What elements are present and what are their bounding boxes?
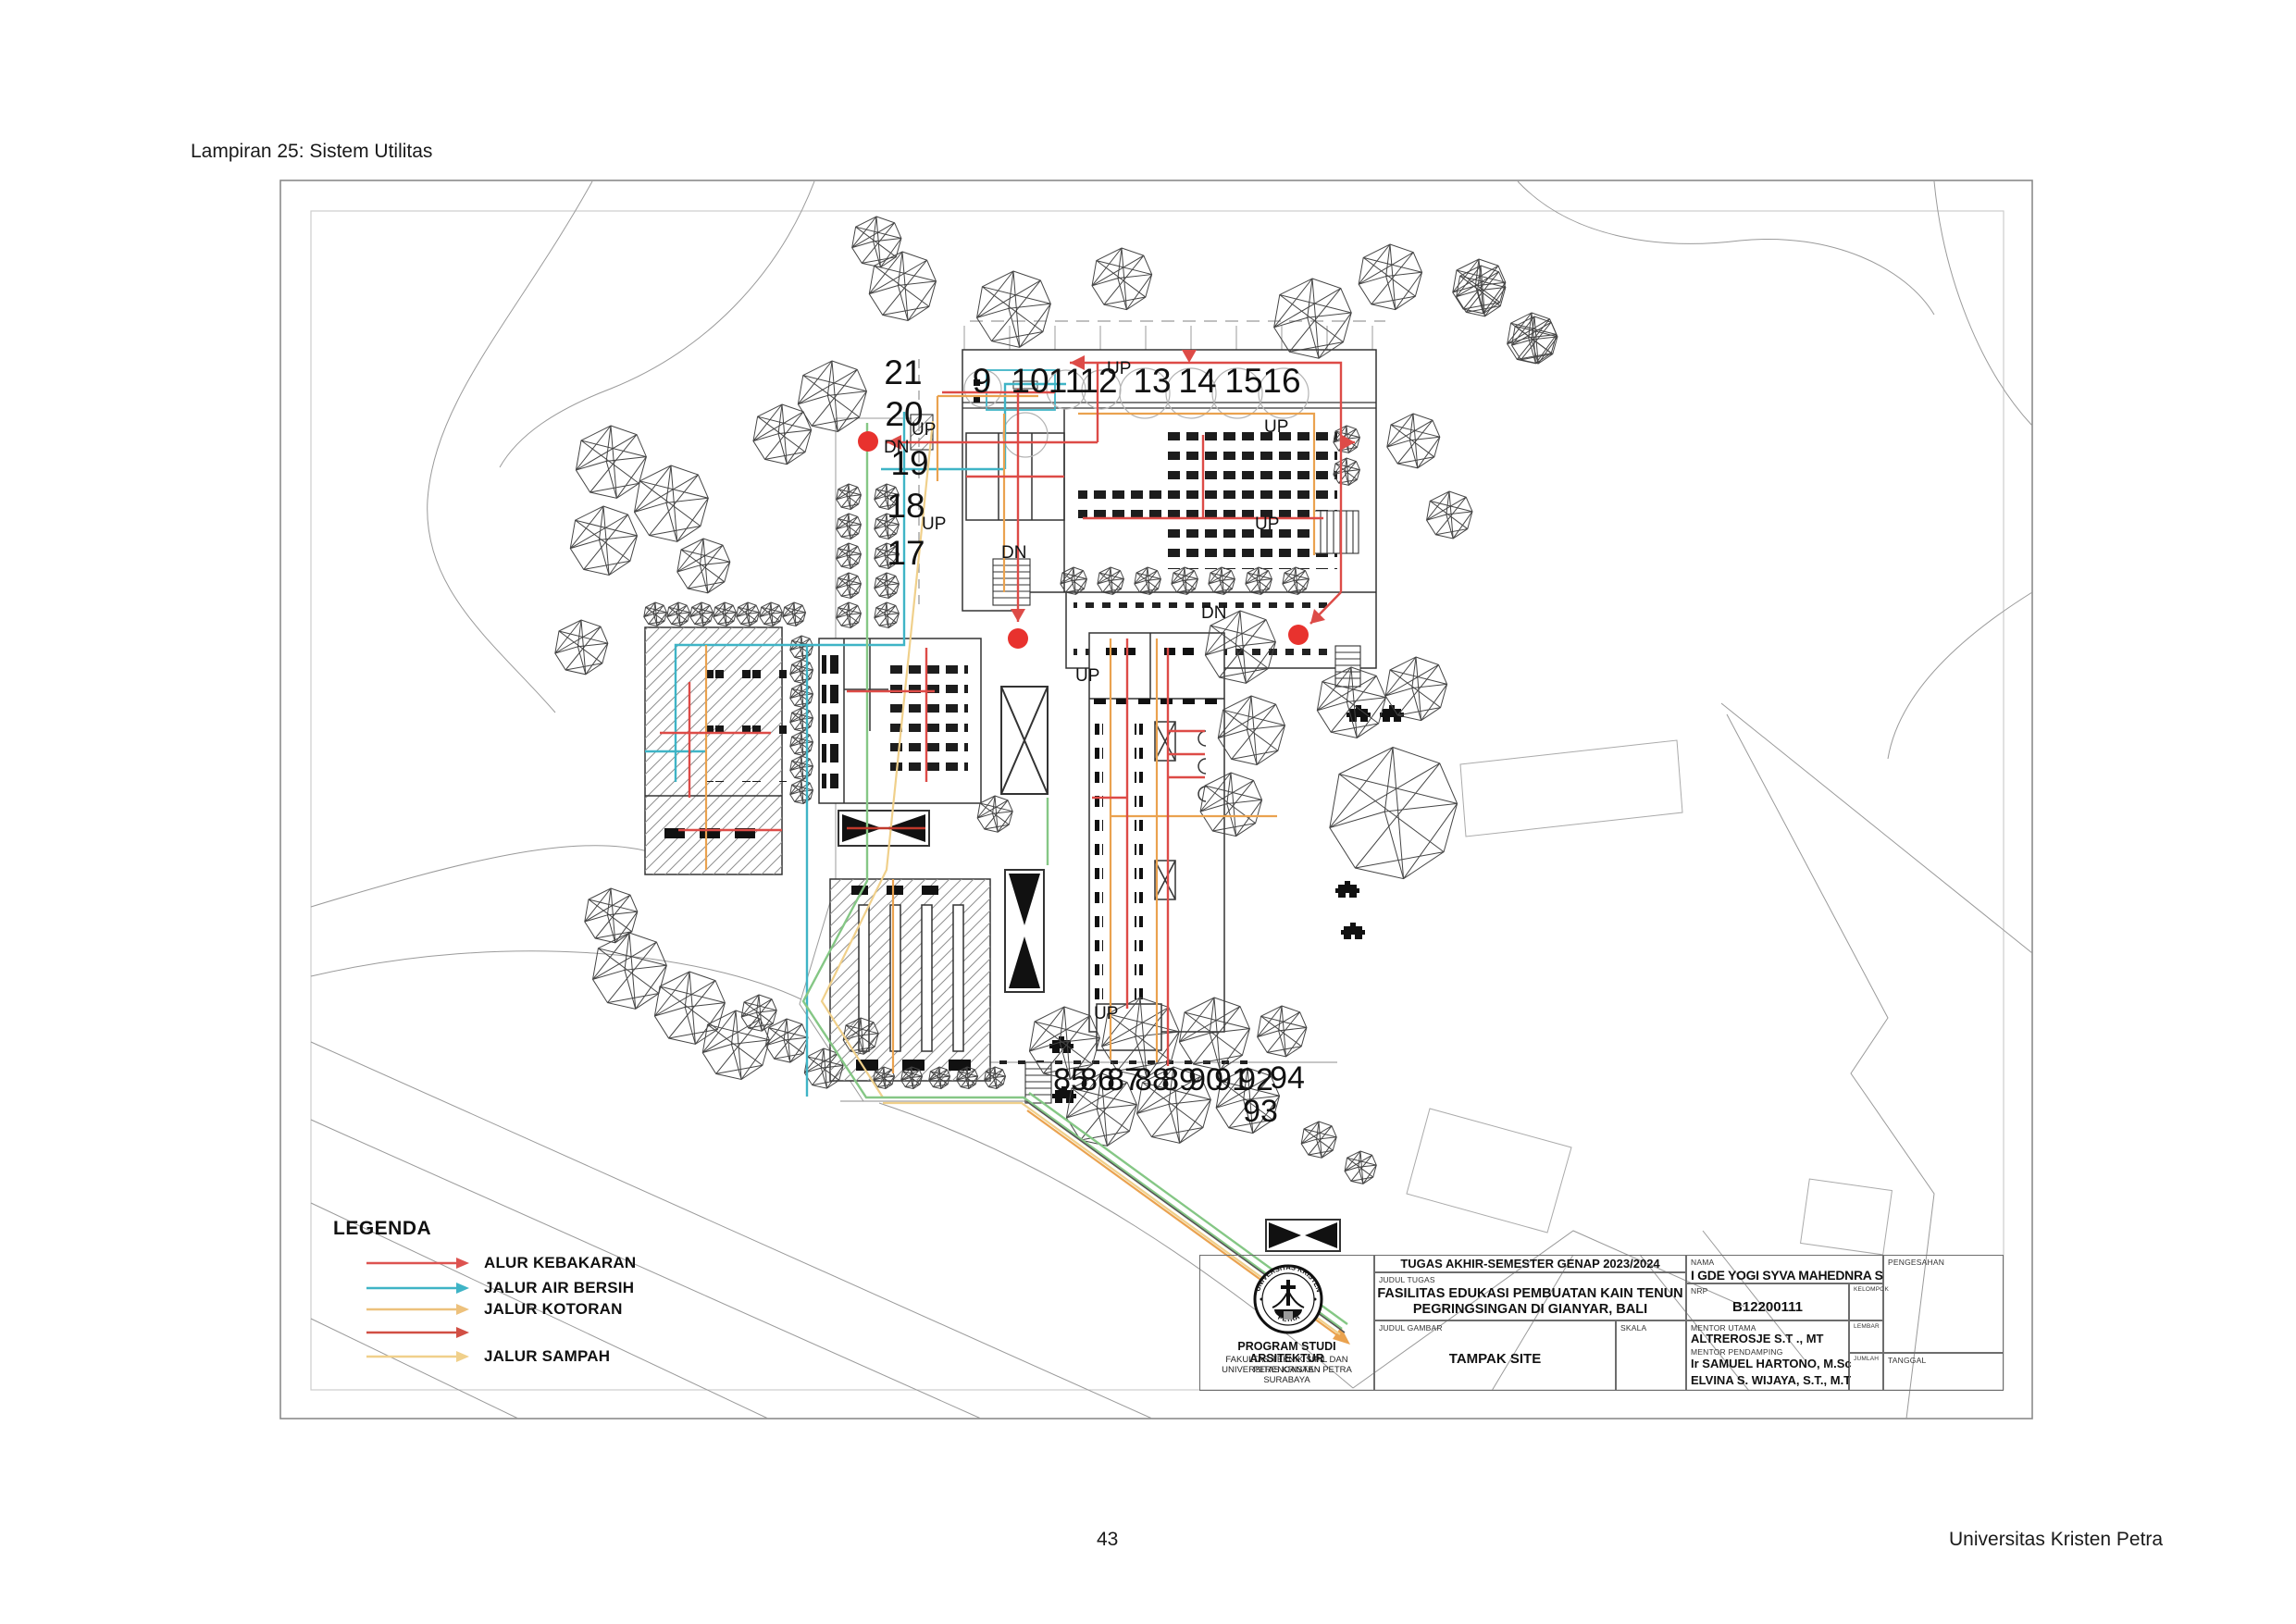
stair-label-up: UP xyxy=(1264,417,1288,437)
stair-label-up: UP xyxy=(1255,514,1279,534)
nama-label: NAMA xyxy=(1691,1258,1714,1267)
skala-label: SKALA xyxy=(1620,1323,1646,1333)
tree-number: 94 xyxy=(1270,1060,1305,1096)
nama-cell: NAMA I GDE YOGI SYVA MAHEDNRA S xyxy=(1686,1255,1883,1283)
legend-item-waste: JALUR SAMPAH xyxy=(366,1350,610,1363)
legend-item-label: JALUR SAMPAH xyxy=(484,1347,610,1366)
legend-item-label: JALUR KOTORAN xyxy=(484,1300,623,1319)
neighbor-buildings xyxy=(1407,740,1892,1255)
stair-label-up: UP xyxy=(912,420,936,440)
tanggal-label: TANGGAL xyxy=(1888,1356,1926,1365)
legend-item-sewage: JALUR KOTORAN xyxy=(366,1303,623,1316)
university-seal-icon: UNIVERSITAS KRISTEN PETRA xyxy=(1252,1263,1324,1335)
pengesahan-label: PENGESAHAN xyxy=(1888,1258,1944,1267)
project-header-cell: TUGAS AKHIR-SEMESTER GENAP 2023/2024 xyxy=(1374,1255,1686,1272)
project-header: TUGAS AKHIR-SEMESTER GENAP 2023/2024 xyxy=(1375,1257,1685,1271)
legend-title: LEGENDA xyxy=(333,1218,648,1240)
legend-item-label: ALUR KEBAKARAN xyxy=(484,1254,636,1272)
judul-tugas-line1: FASILITAS EDUKASI PEMBUATAN KAIN TENUN xyxy=(1375,1286,1685,1301)
mentor-pendamping-value2: ELVINA S. WIJAYA, S.T., M.T xyxy=(1691,1373,1851,1387)
fire-route-arrow-icon xyxy=(366,1257,470,1270)
institution-city: SURABAYA xyxy=(1200,1375,1373,1385)
tree-number: 92 xyxy=(1238,1062,1273,1097)
legend-item-clean-water: JALUR AIR BERSIH xyxy=(366,1282,634,1295)
lembar-label: LEMBAR xyxy=(1854,1323,1880,1330)
legend: LEGENDA ALUR KEBAKARAN JALUR AIR BERSIH … xyxy=(333,1218,648,1240)
stair-label-dn: DN xyxy=(1001,543,1026,563)
judul-gambar-cell: JUDUL GAMBAR TAMPAK SITE xyxy=(1374,1320,1616,1391)
room-number: 16 xyxy=(1262,362,1300,400)
mentor-pendamping-label: MENTOR PENDAMPING xyxy=(1691,1347,1783,1357)
legend-item-fire: ALUR KEBAKARAN xyxy=(366,1257,636,1270)
page-number: 43 xyxy=(1097,1529,1118,1551)
building-classroom xyxy=(819,638,981,803)
stair-label-up: UP xyxy=(1094,1004,1118,1023)
title-block-logo-cell: UNIVERSITAS KRISTEN PETRA PROGRAM STUDI … xyxy=(1199,1255,1374,1391)
legend-item-label: JALUR AIR BERSIH xyxy=(484,1279,634,1297)
jumlah-cell: JUMLAH xyxy=(1849,1353,1883,1391)
judul-tugas-line2: PEGRINGSINGAN DI GIANYAR, BALI xyxy=(1375,1302,1685,1317)
tree-number-labels: 85 86 87 88 89 90 91 92 93 94 xyxy=(1053,1060,1305,1129)
lembar-cell: LEMBAR xyxy=(1849,1320,1883,1353)
room-number: 15 xyxy=(1224,362,1262,400)
room-number: 14 xyxy=(1178,362,1216,400)
nrp-value: B12200111 xyxy=(1687,1299,1848,1315)
red-route-arrow-icon xyxy=(366,1326,470,1339)
document-page: { "page": { "title": "Lampiran 25: Siste… xyxy=(0,0,2296,1624)
title-block: UNIVERSITAS KRISTEN PETRA PROGRAM STUDI … xyxy=(1199,1255,2004,1391)
sewage-arrow-icon xyxy=(366,1303,470,1316)
room-number: 17 xyxy=(887,534,925,572)
jumlah-label: JUMLAH xyxy=(1854,1356,1879,1362)
clean-water-arrow-icon xyxy=(366,1282,470,1295)
room-number: 9 xyxy=(973,362,992,400)
institution-footer: Universitas Kristen Petra xyxy=(1949,1529,2163,1551)
room-number: 18 xyxy=(887,487,925,525)
judul-gambar-label: JUDUL GAMBAR xyxy=(1379,1323,1443,1333)
nrp-cell: NRP B12200111 xyxy=(1686,1283,1849,1320)
stair-label-dn: DN xyxy=(884,438,909,457)
skala-cell: SKALA xyxy=(1616,1320,1686,1391)
legend-item-unlabeled xyxy=(366,1326,484,1339)
waste-arrow-icon xyxy=(366,1350,470,1363)
room-number: 13 xyxy=(1133,362,1171,400)
nrp-label: NRP xyxy=(1691,1286,1708,1295)
institution-university: UNIVERSITAS KRISTEN PETRA xyxy=(1200,1365,1373,1375)
stair-label-up: UP xyxy=(922,514,946,534)
judul-gambar-value: TAMPAK SITE xyxy=(1375,1351,1615,1367)
mentor-utama-value: ALTREROSJE S.T ., MT xyxy=(1691,1332,1824,1345)
room-number: 21 xyxy=(884,353,922,391)
stair-label-up: UP xyxy=(1107,359,1131,378)
tanggal-cell: TANGGAL xyxy=(1883,1353,2004,1391)
room-number: 10 xyxy=(1011,362,1049,400)
kelompok-cell: KELOMPOK xyxy=(1849,1283,1883,1320)
mentor-pendamping-value1: Ir SAMUEL HARTONO, M.Sc xyxy=(1691,1357,1852,1370)
stair-label-dn: DN xyxy=(1201,603,1226,623)
nama-value: I GDE YOGI SYVA MAHEDNRA S xyxy=(1691,1268,1883,1283)
pengesahan-cell: PENGESAHAN xyxy=(1883,1255,2004,1353)
mentor-cell: MENTOR UTAMA ALTREROSJE S.T ., MT MENTOR… xyxy=(1686,1320,1849,1391)
judul-tugas-label: JUDUL TUGAS xyxy=(1379,1275,1435,1284)
tree-number: 93 xyxy=(1243,1094,1278,1129)
judul-tugas-cell: JUDUL TUGAS FASILITAS EDUKASI PEMBUATAN … xyxy=(1374,1272,1686,1320)
stair-label-up: UP xyxy=(1075,666,1099,686)
